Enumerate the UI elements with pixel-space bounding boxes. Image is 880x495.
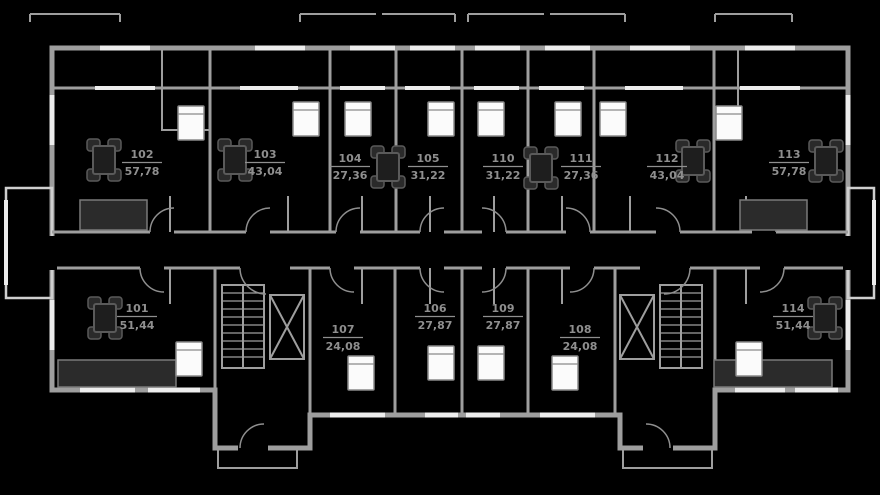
apartment-area: 43,04	[248, 165, 283, 178]
bed-icon	[176, 342, 202, 376]
apartment-label-106[interactable]: 106 27,87	[415, 302, 455, 332]
dining-sets	[87, 139, 843, 339]
apartment-label-103[interactable]: 103 43,04	[245, 148, 285, 178]
elevator-icon	[270, 295, 304, 359]
kitchen-counter	[58, 360, 176, 387]
apartment-label-110[interactable]: 110 31,22	[483, 152, 523, 182]
apartment-label-108[interactable]: 108 24,08	[560, 323, 600, 353]
apartment-number: 103	[254, 148, 277, 161]
bed-icon	[600, 102, 626, 136]
bed-icon	[555, 102, 581, 136]
apartment-area: 31,22	[411, 169, 446, 182]
apartment-label-113[interactable]: 113 57,78	[769, 148, 809, 178]
bed-icon	[478, 346, 504, 380]
apartment-label-105[interactable]: 105 31,22	[408, 152, 448, 182]
apartment-number: 114	[782, 302, 805, 315]
dining-set-icon	[88, 297, 122, 339]
bed-icon	[178, 106, 204, 140]
balcony-left	[6, 188, 52, 298]
apartment-number: 108	[569, 323, 592, 336]
dining-set-icon	[808, 297, 842, 339]
apartment-number: 109	[492, 302, 515, 315]
apartment-area: 27,36	[333, 169, 368, 182]
apartment-label-107[interactable]: 107 24,08	[323, 323, 363, 353]
apartment-number: 113	[778, 148, 801, 161]
staircase-right	[620, 285, 702, 368]
bed-icon	[428, 346, 454, 380]
apartment-area: 27,87	[418, 319, 453, 332]
apartment-area: 57,78	[125, 165, 160, 178]
dining-set-icon	[371, 146, 405, 188]
kitchen-counter	[714, 360, 832, 387]
bed-icon	[428, 102, 454, 136]
apartment-number: 101	[126, 302, 149, 315]
dining-set-icon	[524, 147, 558, 189]
apartment-label-102[interactable]: 102 57,78	[122, 148, 162, 178]
stairs-icon	[222, 285, 264, 368]
apartment-area: 43,04	[650, 169, 685, 182]
bed-icon	[736, 342, 762, 376]
apartment-number: 110	[492, 152, 515, 165]
apartment-area: 27,36	[564, 169, 599, 182]
apartment-label-109[interactable]: 109 27,87	[483, 302, 523, 332]
apartment-area: 24,08	[326, 340, 361, 353]
apartment-label-104[interactable]: 104 27,36	[330, 152, 370, 182]
apartment-number: 111	[570, 152, 593, 165]
kitchen-counter	[740, 200, 807, 230]
apartment-number: 112	[656, 152, 679, 165]
apartment-area: 27,87	[486, 319, 521, 332]
apartment-number: 105	[417, 152, 440, 165]
dining-set-icon	[809, 140, 843, 182]
apartment-label-101[interactable]: 101 51,44	[117, 302, 157, 332]
apartment-number: 106	[424, 302, 447, 315]
apartment-area: 24,08	[563, 340, 598, 353]
apartment-area: 57,78	[772, 165, 807, 178]
apartment-area: 51,44	[120, 319, 155, 332]
bed-icon	[293, 102, 319, 136]
apartment-label-114[interactable]: 114 51,44	[773, 302, 813, 332]
floor-plan: 101 51,44 102 57,78 103 43,04 104 27,36 …	[0, 0, 880, 495]
apartment-number: 107	[332, 323, 355, 336]
elevator-icon	[620, 295, 654, 359]
apartment-number: 104	[339, 152, 362, 165]
apartment-area: 51,44	[776, 319, 811, 332]
dining-set-icon	[87, 139, 121, 181]
bed-icon	[552, 356, 578, 390]
stairs-icon	[660, 285, 702, 368]
kitchen-counter	[80, 200, 147, 230]
bed-icon	[716, 106, 742, 140]
bed-icon	[348, 356, 374, 390]
balcony-railings	[30, 14, 792, 468]
apartment-number: 102	[131, 148, 154, 161]
staircase-left	[222, 285, 304, 368]
apartment-area: 31,22	[486, 169, 521, 182]
bed-icon	[345, 102, 371, 136]
bed-icon	[478, 102, 504, 136]
